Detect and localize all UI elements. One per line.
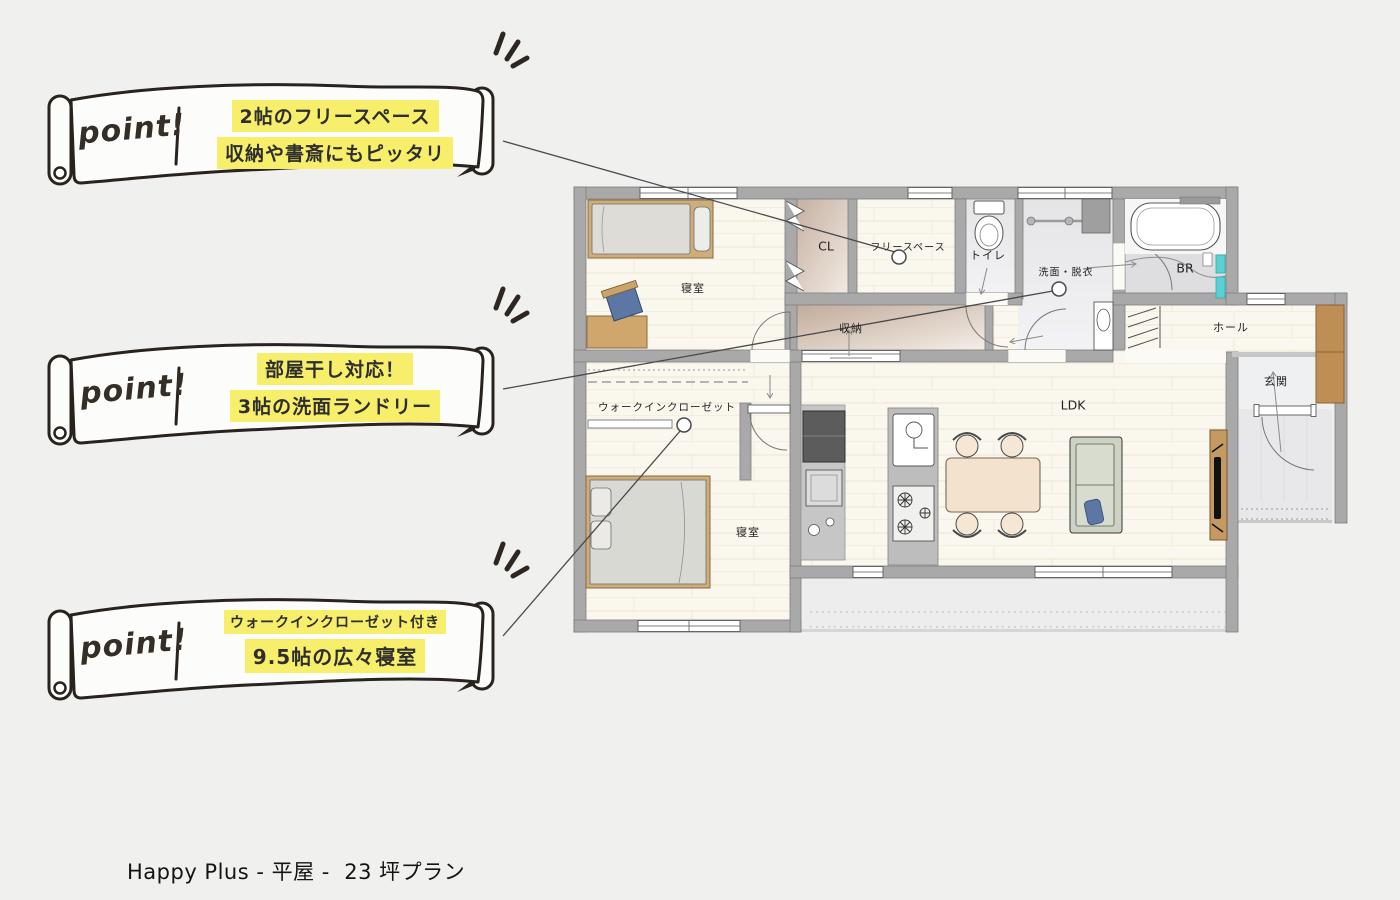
shoe-cabinet-icon [1316, 305, 1344, 403]
room-label-ldk: LDK [1061, 398, 1086, 413]
room-label-bedroom-1: 寝室 [681, 280, 705, 296]
plan-title: Happy Plus - 平屋 - 23 坪プラン [127, 856, 465, 886]
pillow-icon [694, 207, 710, 251]
stove-icon [893, 486, 934, 541]
point-text-1: 2帖のフリースペース 収納や書斎にもピッタリ [185, 100, 485, 169]
tv-icon [1214, 457, 1221, 519]
shower-item-icon [1216, 255, 1225, 273]
point-2-line-1: 部屋干し対応！ [257, 353, 413, 385]
microwave-icon [806, 470, 842, 506]
terrace-floor [801, 578, 1232, 632]
room-label-bath: BR [1176, 261, 1193, 276]
room-label-toilet: トイレ [970, 247, 1006, 263]
point-3-line-2: 9.5帖の広々寝室 [245, 639, 425, 673]
point-1-line-1: 2帖のフリースペース [232, 100, 439, 132]
point-text-2: 部屋干し対応！ 3帖の洗面ランドリー [185, 353, 485, 422]
leader-dot-2 [1052, 282, 1066, 296]
room-label-cl: CL [818, 239, 834, 254]
room-label-hall: ホール [1213, 319, 1249, 335]
desk-icon [587, 316, 647, 348]
room-label-wic: ウォークインクローゼット [598, 400, 736, 415]
closet-rod-icon [588, 420, 672, 428]
tv-board-icon [1210, 430, 1227, 540]
dining-table-icon [946, 458, 1040, 512]
room-label-entrance: 玄関 [1264, 373, 1288, 389]
storage-floor [797, 305, 985, 350]
toilet-icon [974, 201, 1004, 250]
room-label-storage: 収納 [839, 320, 863, 336]
bedroom2-furniture [586, 476, 710, 588]
floorplan-poster: point! 2帖のフリースペース 収納や書斎にもピッタリ point! 部屋干… [0, 0, 1400, 900]
cabinet-icon [1082, 199, 1110, 233]
room-label-washroom: 洗面・脱衣 [1039, 264, 1094, 279]
refrigerator-icon [803, 411, 845, 462]
point-1-line-2: 収納や書斎にもピッタリ [217, 137, 453, 169]
point-text-3: ウォークインクローゼット付き 9.5帖の広々寝室 [185, 610, 485, 673]
sofa-icon [1070, 437, 1122, 533]
leader-dot-3 [677, 418, 691, 432]
point-2-line-2: 3帖の洗面ランドリー [230, 390, 440, 422]
porch-floor [1238, 409, 1332, 523]
sparkle-icon [496, 34, 527, 576]
room-label-free-space: フリースペース [870, 239, 945, 254]
room-label-bedroom-2: 寝室 [736, 524, 760, 540]
point-3-line-1: ウォークインクローゼット付き [224, 610, 446, 634]
